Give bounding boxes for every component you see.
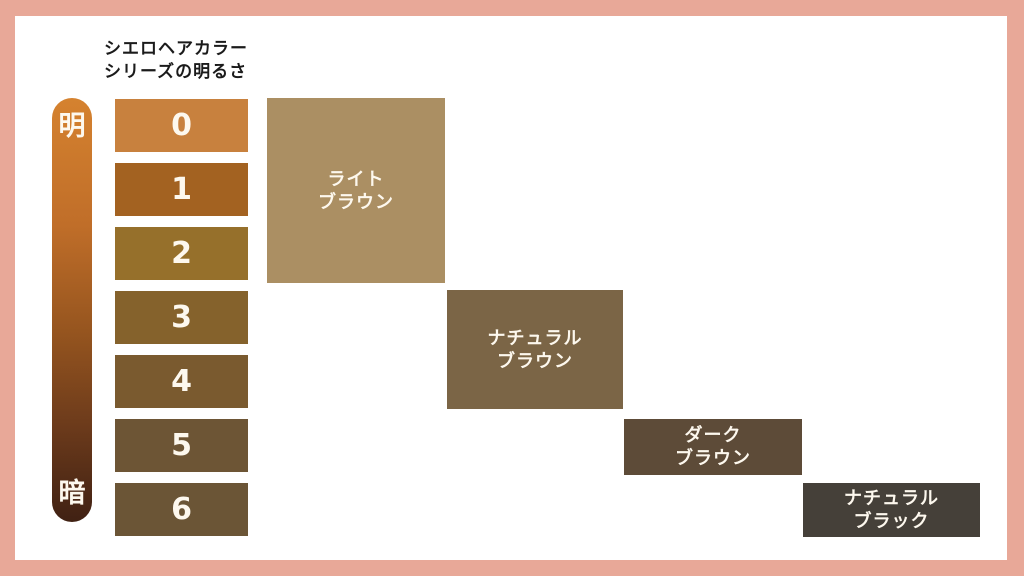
level-swatch-6: 6 <box>115 483 248 536</box>
category-label-line1: ナチュラル <box>844 487 939 510</box>
category-label-line2: ブラウン <box>675 447 751 470</box>
category-block-natural-brown: ナチュラル ブラウン <box>447 290 623 409</box>
category-label-line2: ブラウン <box>318 191 394 214</box>
level-swatch-4: 4 <box>115 355 248 408</box>
dark-label: 暗 <box>52 480 92 507</box>
brightness-gradient-bar: 明 暗 <box>52 98 92 522</box>
level-swatch-3: 3 <box>115 291 248 344</box>
pink-frame: シエロヘアカラー シリーズの明るさ 明 暗 0 1 2 3 4 5 6 ライト … <box>0 0 1024 576</box>
category-label-line2: ブラック <box>854 510 930 533</box>
chart-title: シエロヘアカラー シリーズの明るさ <box>104 38 248 84</box>
category-block-light-brown: ライト ブラウン <box>267 98 445 283</box>
level-swatch-1: 1 <box>115 163 248 216</box>
category-block-natural-black: ナチュラル ブラック <box>803 483 980 537</box>
category-label-line2: ブラウン <box>497 350 573 373</box>
chart-title-line2: シリーズの明るさ <box>104 61 248 84</box>
category-label-line1: ナチュラル <box>488 327 583 350</box>
bright-label: 明 <box>52 113 92 140</box>
category-block-dark-brown: ダーク ブラウン <box>624 419 802 475</box>
chart-canvas <box>15 16 1007 560</box>
level-swatch-5: 5 <box>115 419 248 472</box>
level-swatch-2: 2 <box>115 227 248 280</box>
chart-title-line1: シエロヘアカラー <box>104 38 248 61</box>
category-label-line1: ライト <box>328 168 385 191</box>
category-label-line1: ダーク <box>685 424 742 447</box>
level-swatch-0: 0 <box>115 99 248 152</box>
